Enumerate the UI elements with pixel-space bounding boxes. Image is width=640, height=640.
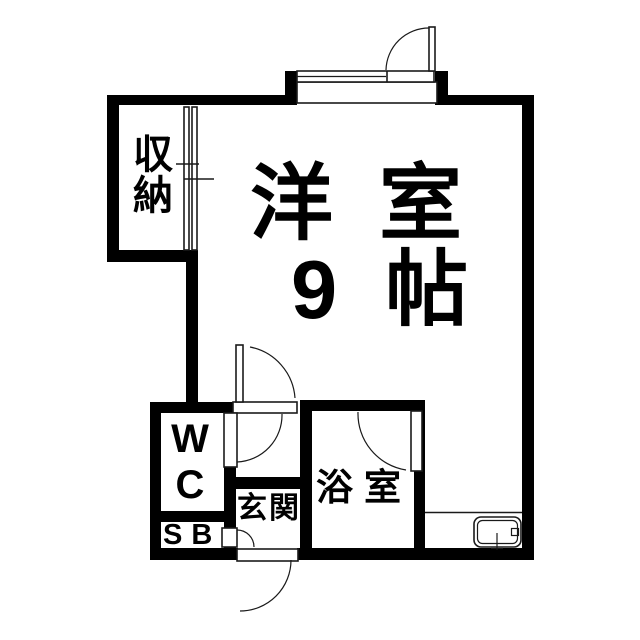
room-label-shoebox: SB [163,521,221,550]
closet-label-char-2: 納 [130,176,176,217]
wc-label-char-2: C [162,462,218,508]
balcony-door-leaf [429,27,435,71]
floor-plan: 収 納 洋室 9帖 W C SB 玄関 浴室 [0,0,640,640]
room-label-wc: W C [162,416,218,508]
balcony-door-arc [386,28,429,70]
hall-door-arc-south [237,414,282,462]
wall-bathroom-top [300,400,425,411]
wall-mid-left [186,250,198,413]
wall-top-right [435,95,534,105]
bathroom-door-arc [358,412,406,470]
shoebox-door-arc [237,530,254,547]
wall-balcony-stub-left [285,71,297,97]
hall-door-leaf-north [236,345,243,402]
hall-door-arc-north [250,347,295,398]
wall-right [522,95,534,560]
room-label-closet: 収 納 [130,135,176,217]
hall-door-leaf-south [224,413,237,467]
wall-wc-left [150,402,161,560]
room-label-main-name: 洋室 [250,162,508,245]
wall-bottom-right [297,548,534,560]
room-label-main-size: 9帖 [291,248,516,331]
entrance-door-threshold [237,549,298,561]
bathroom-door-leaf [411,411,422,471]
room-label-entrance: 玄関 [237,494,301,524]
hall-doorway-threshold [233,402,297,413]
wall-closet-bottom [107,250,198,262]
wc-label-char-1: W [162,416,218,462]
wall-bathroom-left [300,400,312,560]
wall-left-closet [107,95,119,262]
balcony-step [297,82,437,103]
wall-top-left [107,95,297,105]
room-label-bathroom: 浴室 [316,469,412,506]
shoebox-door-leaf [222,528,237,547]
wall-wc-top [150,402,236,413]
wall-genkan-top [224,477,312,489]
entrance-door-arc [240,560,291,611]
closet-label-char-1: 収 [130,135,176,176]
